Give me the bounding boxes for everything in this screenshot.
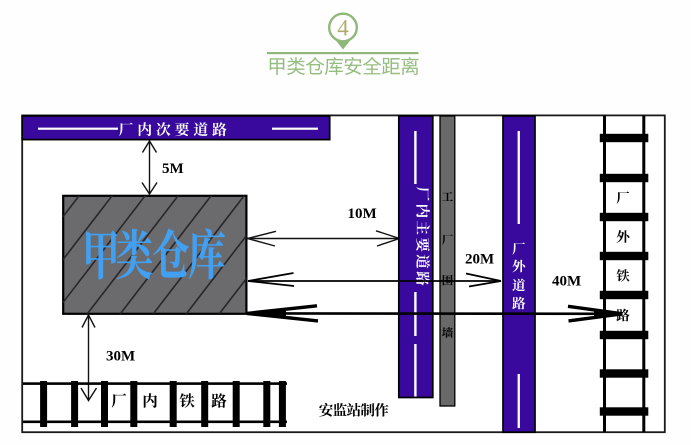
svg-text:5M: 5M [162,161,184,177]
svg-text:10M: 10M [348,206,377,222]
svg-text:4: 4 [337,16,349,41]
svg-text:20M: 20M [465,252,494,268]
svg-text:40M: 40M [552,274,581,290]
svg-text:30M: 30M [106,349,135,365]
